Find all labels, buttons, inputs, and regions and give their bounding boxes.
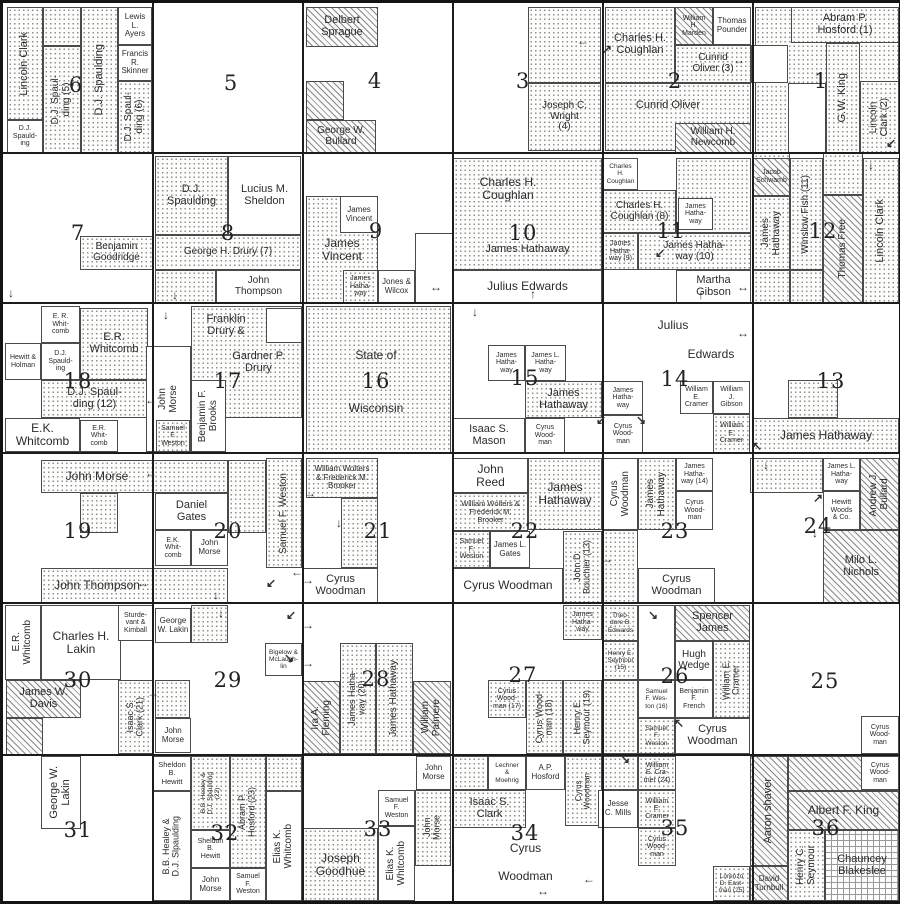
road-arrow-icon: → — [302, 573, 314, 587]
parcel-james-hatha-way: James Hatha- way — [563, 605, 602, 640]
parcel-lewis-l-ayers: Lewis L. Ayers — [118, 7, 152, 45]
parcel-owner-label: Samuel F. Weston — [161, 425, 185, 448]
parcel-jesse-c-mills: Jesse C. Mills — [598, 790, 638, 828]
parcel-area — [155, 680, 190, 718]
road-arrow-icon: ↓ — [472, 305, 478, 319]
road-arrow-icon: ↙ — [886, 136, 896, 150]
parcel-owner-label: Joseph Goodhue — [316, 852, 365, 878]
parcel-owner-label: E.R. Whit- comb — [90, 425, 107, 448]
parcel-owner-label: Sturde- vant & Kimball — [124, 612, 147, 635]
parcel-owner-label: Cyrus Wood- man — [870, 762, 891, 785]
road-arrow-icon: ↘ — [284, 651, 294, 665]
parcel-john-reed: John Reed — [453, 458, 528, 493]
parcel-owner-label: Charles H. Lakin — [53, 630, 110, 656]
parcel-william-palmere: William Palmere — [413, 681, 451, 754]
parcel-owner-label: Cyrus Woodman — [610, 471, 632, 516]
parcel-owner-label: Milo L. Nichols — [843, 555, 879, 579]
section-number-1: 1 — [814, 69, 828, 93]
parcel-owner-label: William H. Newcomb — [691, 127, 736, 149]
label-cunrid-oliver: Cunrid Oliver — [613, 95, 723, 117]
parcel-cyrus-woodman: Cyrus Woodman — [453, 568, 563, 603]
section-number-24: 24 — [804, 514, 833, 538]
parcel-aaron-shaver: Aaron shaver — [750, 756, 788, 866]
parcel-e-r-whit-comb: E.R. Whit- comb — [80, 420, 118, 452]
parcel-james-hatha-way-9: James Hatha- way (9) — [603, 233, 638, 270]
parcel-owner-label: Cunrid Oliver (3) — [692, 53, 733, 75]
parcel-e-k-whit-comb: E.K. Whit- comb — [155, 530, 191, 566]
parcel-owner-label: D.J. Spauld- ing — [13, 125, 37, 148]
parcel-owner-label: Samuel F. Weston — [645, 725, 667, 746]
section-number-17: 17 — [214, 369, 243, 393]
parcel-owner-label: James Hathaway — [646, 472, 668, 516]
parcel-owner-label: William Wolters & Frederick M. Brooker — [315, 465, 370, 491]
parcel-owner-label: Lechner & Moehrig — [495, 762, 519, 783]
parcel-owner-label: Julius Edwards — [487, 280, 568, 293]
parcel-cyrus-woodman: Cyrus Woodman — [565, 756, 602, 826]
parcel-owner-label: Lucius M. Sheldon — [241, 184, 288, 208]
parcel-owner-label: James L. Gates — [494, 541, 526, 558]
parcel-owner-label: William H. Marden — [682, 15, 706, 38]
parcel-owner-label: John Morse — [199, 876, 221, 893]
parcel-john-morse: John Morse — [415, 790, 451, 866]
parcel-d-j-spauld-ing: D.J. Spauld- ing — [7, 120, 43, 153]
plat-map: Lincoln ClarkD.J. Spaul- ding (5)D.J. Sp… — [0, 0, 900, 904]
parcel-area — [788, 83, 826, 153]
parcel-owner-label: Henry C. Seymour — [796, 845, 818, 885]
parcel-owner-label: James Hatha- way (14) — [681, 463, 708, 486]
parcel-sturde-vant-kimball: Sturde- vant & Kimball — [118, 605, 153, 641]
section-number-6: 6 — [69, 73, 83, 97]
road-arrow-icon: ← — [577, 34, 589, 48]
road-arrow-icon: ↙ — [596, 413, 606, 427]
parcel-thomas-pounder: Thomas Pounder — [713, 7, 751, 45]
parcel-charles-h-coughlan: Charles H. Coughlan — [605, 7, 675, 83]
parcel-owner-label: James Hathaway — [761, 211, 783, 255]
parcel-lechner-moehrig: Lechner & Moehrig — [488, 756, 526, 790]
parcel-benjamin-goodridge: Benjamin Goodridge — [80, 236, 153, 270]
road-arrow-icon: ↓ — [213, 588, 219, 602]
parcel-james-hathaway: James Hathaway — [753, 418, 899, 453]
parcel-george-w-lakin: George W. Lakin — [155, 608, 191, 643]
parcel-owner-label: James Hatha- way — [685, 203, 706, 226]
label-julius: Julius — [633, 316, 713, 334]
parcel-owner-label: Cyrus Woodman — [575, 773, 592, 809]
parcel-g-w-king: G.W. King — [826, 43, 860, 153]
parcel-owner-label: D.J. Spaulding — [94, 44, 106, 116]
parcel-john-morse: John Morse — [41, 460, 153, 493]
parcel-william-e-cra-mer-24: William E. Cra- mer (24) — [638, 756, 676, 790]
parcel-owner-label: Jacob Schwamb — [756, 169, 787, 184]
parcel-owner-label: Lewis L. Ayers — [125, 13, 145, 39]
section-number-29: 29 — [214, 668, 243, 692]
parcel-owner-label: James L. Hatha- way — [827, 463, 855, 486]
parcel-owner-label: Daniel Gates — [176, 500, 207, 524]
parcel-julius-edwards: Julius Edwards — [453, 270, 602, 303]
section-number-34: 34 — [511, 821, 540, 845]
section-number-33: 33 — [364, 817, 393, 841]
parcel-owner-label: John Morse — [158, 385, 180, 413]
parcel-ira-a-fleming: Ira A. Fleming — [303, 681, 340, 754]
parcel-william-wolters-frederick-m-brooker: William Wolters & Frederick M. Brooker — [306, 458, 378, 498]
parcel-owner-label: Henry E. Seymour (15) — [607, 650, 633, 671]
parcel-area — [153, 460, 228, 493]
parcel-owner-label: Charles H. Coughlan — [607, 163, 635, 184]
label-woodman: Woodman — [483, 867, 568, 885]
parcel-a-p-hosford: A.P. Hosford — [526, 756, 565, 790]
parcel-owner-label: Charles H. Coughlan — [614, 33, 666, 57]
road-arrow-icon: ↔ — [430, 280, 442, 294]
parcel-owner-label: George W. Lakin — [158, 617, 189, 634]
road-arrow-icon: ↔ — [733, 53, 745, 67]
parcel-isaac-s-mason: Isaac S. Mason — [453, 418, 525, 453]
parcel-owner-label: B.B. Healey & D.J. Spaulding (22) — [200, 772, 221, 814]
section-number-9: 9 — [369, 219, 383, 243]
parcel-john-thompson: John Thompson — [216, 270, 301, 303]
road-arrow-icon: ↔ — [537, 884, 549, 898]
section-number-3: 3 — [516, 69, 530, 93]
parcel-owner-label: Julius — [658, 319, 689, 332]
label-state-of: State of — [326, 346, 426, 364]
parcel-samuel-f-weston: Samuel F. Weston — [453, 531, 490, 568]
parcel-owner-label: Benjamin F. Brooks — [198, 390, 220, 442]
parcel-owner-label: John Morse — [422, 764, 444, 781]
section-number-11: 11 — [657, 219, 686, 243]
section-boundary-horizontal — [3, 452, 899, 454]
label-charles-h-coughlan: Charles H. Coughlan — [458, 166, 558, 212]
road-arrow-icon: ↓ — [868, 158, 874, 172]
parcel-cyrus-wood-man: Cyrus Wood- man — [861, 756, 899, 790]
section-number-18: 18 — [64, 369, 93, 393]
label-edwards: Edwards — [671, 345, 751, 363]
parcel-owner-label: Cyrus Wood- man — [613, 423, 634, 446]
road-arrow-icon: ↔ — [145, 466, 157, 480]
section-number-13: 13 — [817, 369, 846, 393]
parcel-lorenzo-d-east-man-25: Lorenzo D. East- man (25) — [713, 866, 750, 901]
parcel-owner-label: Samuel F. Weston — [279, 473, 290, 554]
parcel-owner-label: George W. Bullard — [317, 126, 365, 148]
road-arrow-icon: ↔ — [145, 393, 157, 407]
road-arrow-icon: ↙ — [286, 608, 296, 622]
section-number-7: 7 — [71, 221, 85, 245]
road-arrow-icon: ↔ — [737, 280, 749, 294]
parcel-owner-label: George W. Lakin — [49, 766, 73, 819]
parcel-area — [603, 530, 638, 603]
section-number-30: 30 — [64, 668, 93, 692]
section-number-25: 25 — [811, 669, 840, 693]
parcel-lincoln-clark: Lincoln Clark — [863, 158, 899, 303]
parcel-b-b-healey-d-j-slpaulding: B.B. Healey & D.J. Slpaulding — [153, 791, 191, 901]
parcel-area — [155, 270, 216, 303]
parcel-e-r-whit-comb: E. R. Whit- comb — [41, 306, 80, 343]
section-number-31: 31 — [64, 818, 93, 842]
parcel-john-d-bouchier-13: John D. Bouchier (13) — [563, 531, 602, 603]
parcel-samuel-f-weston: Samuel F. Weston — [266, 458, 302, 568]
parcel-owner-label: John Morse — [66, 470, 129, 483]
section-boundary-horizontal — [3, 602, 899, 604]
parcel-b-b-healey-d-j-spaulding-22: B.B. Healey & D.J. Spaulding (22) — [191, 756, 230, 830]
parcel-owner-label: Lorenzo D. East- man (25) — [718, 873, 744, 894]
road-arrow-icon: ↑ — [530, 287, 536, 301]
parcel-hewitt-holman: Hewitt & Holman — [5, 343, 41, 380]
parcel-owner-label: Samuel F. Weston — [460, 538, 484, 561]
parcel-owner-label: William E. Cramer — [722, 660, 741, 700]
section-number-27: 27 — [509, 663, 538, 687]
road-arrow-icon: ↖ — [674, 716, 684, 730]
parcel-area — [603, 680, 638, 754]
parcel-owner-label: Cyrus Wood- man — [535, 424, 556, 447]
parcel-area — [750, 458, 823, 493]
road-arrow-icon: ↓ — [763, 458, 769, 472]
parcel-owner-label: State of — [355, 349, 396, 362]
parcel-owner-label: James Hathaway — [485, 244, 569, 256]
road-arrow-icon: ↓ — [336, 516, 342, 530]
parcel-owner-label: James W. Davis — [19, 687, 67, 711]
parcel-owner-label: James Hathaway — [780, 429, 872, 442]
section-number-32: 32 — [211, 821, 240, 845]
section-number-19: 19 — [64, 519, 93, 543]
parcel-owner-label: Cyrus Wood- man (18) — [535, 691, 554, 743]
parcel-john-morse: John Morse — [155, 718, 191, 753]
parcel-area — [528, 7, 601, 83]
parcel-owner-label: Sheldon B. Hewitt — [158, 761, 186, 785]
parcel-area — [306, 81, 344, 120]
parcel-owner-label: James Vincent — [322, 237, 362, 263]
parcel-cyrus-wood-man-18: Cyrus Wood- man (18) — [526, 680, 563, 754]
parcel-francis-r-skinner: Francis R. Skinner — [118, 45, 152, 81]
parcel-george-w-bullard: George W. Bullard — [306, 120, 376, 153]
parcel-owner-label: John Thompson — [54, 579, 140, 592]
section-number-15: 15 — [511, 366, 540, 390]
section-number-8: 8 — [221, 221, 235, 245]
parcel-cyrus-wood-man: Cyrus Wood- man — [525, 418, 565, 453]
parcel-owner-label: D.J. Spaul- ding (6) — [124, 92, 146, 141]
parcel-owner-label: Spencer James — [692, 611, 733, 635]
parcel-owner-label: Cunrid Oliver — [636, 100, 700, 112]
parcel-owner-label: John Reed — [476, 463, 505, 489]
parcel-owner-label: Isaac S. Clark — [470, 797, 510, 821]
parcel-owner-label: James Hatha- way — [572, 611, 593, 634]
parcel-owner-label: Samuel F. Weston — [236, 873, 260, 896]
parcel-william-j-gibson: William J. Gibson — [713, 381, 750, 414]
parcel-area — [266, 308, 302, 343]
parcel-owner-label: John Thompson — [235, 276, 282, 298]
parcel-james-hatha-way-20: James Hatha- way (20) — [340, 643, 376, 754]
section-number-26: 26 — [661, 664, 690, 688]
parcel-owner-label: James Hathaway — [539, 388, 588, 412]
section-number-22: 22 — [511, 519, 540, 543]
parcel-owner-label: Benjamin Goodridge — [93, 242, 140, 264]
parcel-james-l-hatha-way: James L. Hatha- way — [823, 458, 860, 491]
parcel-andrew-j-bullard: Andrew J. Bullard — [860, 458, 899, 530]
parcel-owner-label: E.R. Whitcomb — [90, 332, 139, 356]
parcel-owner-label: James Hatha- way — [350, 275, 371, 298]
parcel-owner-label: Wisconsin — [349, 402, 404, 415]
road-arrow-icon: ↗ — [602, 42, 612, 56]
parcel-william-h-newcomb: William H. Newcomb — [675, 123, 751, 153]
parcel-abram-p-hosford-23: Abram P. Hosford (23) — [230, 756, 266, 868]
parcel-jones-wilcox: Jones & Wilcox — [378, 270, 415, 303]
parcel-area — [751, 45, 788, 83]
parcel-spencer-james: Spencer James — [675, 605, 750, 641]
parcel-owner-label: A.P. Hosford — [531, 764, 559, 781]
parcel-owner-label: Isaac S. Clark (21) — [126, 697, 145, 737]
parcel-owner-label: David Turnbull — [755, 875, 784, 892]
parcel-theo-dore-b-edwards: Theo- dore B. Edwards — [603, 605, 638, 641]
road-arrow-icon: ↓ — [172, 288, 178, 302]
parcel-owner-label: Isaac S. Mason — [469, 424, 509, 448]
section-number-35: 35 — [661, 816, 690, 840]
parcel-owner-label: Andrew J. Bullard — [869, 472, 891, 516]
parcel-d-j-spaul-ding-5: D.J. Spaul- ding (5) — [43, 46, 81, 153]
parcel-owner-label: Delbert Sprague — [321, 15, 363, 39]
road-arrow-icon: ↖ — [752, 439, 762, 453]
road-arrow-icon: ↘ — [620, 752, 630, 766]
parcel-william-h-marden: William H. Marden — [675, 7, 713, 45]
road-arrow-icon: → — [302, 656, 314, 670]
parcel-chauncey-blakeslee: Chauncey Blakeslee — [825, 830, 899, 901]
parcel-d-j-spaulding: D.J. Spaulding — [81, 7, 118, 153]
parcel-samuel-f-weston: Samuel F. Weston — [230, 868, 266, 901]
parcel-owner-label: James Hatha- way (9) — [609, 240, 632, 263]
parcel-owner-label: Joseph C. Wright (4) — [542, 101, 587, 133]
road-arrow-icon: ↔ — [737, 326, 749, 340]
road-arrow-icon: → — [147, 686, 159, 700]
parcel-owner-label: Hewitt & Holman — [10, 354, 36, 369]
parcel-owner-label: Samuel F. Wes- ton (16) — [645, 688, 667, 709]
parcel-james-hathaway: James Hathaway — [376, 643, 413, 754]
parcel-owner-label: Ira A. Fleming — [311, 700, 333, 736]
parcel-owner-label: Cyrus Woodman — [463, 579, 552, 592]
parcel-owner-label: James Hathaway — [538, 481, 591, 507]
parcel-owner-label: Abram P. Hosford (23) — [238, 787, 257, 837]
parcel-owner-label: James Hathaway — [389, 660, 400, 737]
parcel-owner-label: Jones & Wilcox — [382, 278, 411, 295]
road-arrow-icon: ↓ — [218, 606, 224, 620]
parcel-owner-label: John D. Bouchier (13) — [573, 540, 592, 594]
parcel-owner-label: James Hatha- way (10) — [663, 241, 725, 263]
parcel-owner-label: Cyrus Woodman — [652, 574, 702, 598]
section-boundary-horizontal — [3, 152, 899, 154]
section-number-36: 36 — [812, 816, 841, 840]
section-number-10: 10 — [509, 221, 538, 245]
parcel-cyrus-wood-man: Cyrus Wood- man — [861, 716, 899, 754]
parcel-owner-label: William E. Cra- mer (24) — [644, 762, 670, 785]
road-arrow-icon: ↓ — [163, 308, 169, 322]
parcel-henry-e-seymour-15: Henry E. Seymour (15) — [603, 641, 638, 680]
section-number-5: 5 — [224, 71, 238, 95]
parcel-area — [823, 153, 863, 195]
road-arrow-icon: ↙ — [655, 246, 665, 260]
parcel-owner-label: Benjamin F. French — [679, 688, 708, 711]
parcel-albert-f-king: Albert F. King — [788, 791, 899, 830]
parcel-william-e-cramer: William E. Cramer — [713, 414, 750, 453]
section-number-14: 14 — [661, 367, 690, 391]
section-number-12: 12 — [809, 219, 838, 243]
parcel-owner-label: Lincoln Clark (2) — [869, 98, 891, 136]
section-number-28: 28 — [362, 667, 391, 691]
parcel-abram-p-hosford-1: Abram P. Hosford (1) — [791, 7, 899, 43]
label-wisconsin: Wisconsin — [326, 399, 426, 417]
parcel-owner-label: B.B. Healey & D.J. Slpaulding — [162, 816, 181, 877]
section-number-4: 4 — [368, 69, 382, 93]
parcel-lucius-m-sheldon: Lucius M. Sheldon — [228, 156, 301, 235]
parcel-owner-label: George H. Drury (7) — [184, 247, 272, 258]
parcel-area — [6, 718, 43, 755]
parcel-joseph-c-wright-4: Joseph C. Wright (4) — [528, 83, 601, 151]
parcel-owner-label: Lincoln Clark — [875, 199, 887, 263]
parcel-owner-label: William Palmere — [421, 699, 443, 736]
section-number-16: 16 — [362, 369, 391, 393]
parcel-john-morse: John Morse — [191, 868, 230, 901]
parcel-owner-label: Samuel F. Weston — [385, 797, 409, 820]
parcel-owner-label: William J. Gibson — [720, 386, 743, 409]
parcel-owner-label: Francis R. Skinner — [121, 50, 148, 76]
parcel-john-morse: John Morse — [416, 756, 451, 790]
parcel-elias-k-whitcomb: Elias K. Whitcomb — [266, 791, 302, 901]
parcel-owner-label: Charles H. Coughlan — [480, 176, 537, 202]
parcel-owner-label: Cyrus Woodman — [688, 724, 738, 748]
parcel-james-hatha-way: James Hatha- way — [343, 270, 378, 303]
parcel-lincoln-clark: Lincoln Clark — [7, 7, 43, 120]
parcel-owner-label: Jesse C. Mills — [605, 800, 631, 817]
parcel-william-e-cramer: William E. Cramer — [713, 641, 750, 718]
road-arrow-icon: ↘ — [648, 608, 658, 622]
road-arrow-icon: → — [601, 552, 613, 566]
parcel-james-hatha-way: James Hatha- way — [603, 381, 643, 415]
parcel-delbert-sprague: Delbert Sprague — [306, 7, 378, 47]
parcel-area — [453, 756, 488, 790]
parcel-james-hathaway: James Hathaway — [753, 196, 790, 270]
parcel-cyrus-woodman: Cyrus Woodman — [303, 568, 378, 603]
parcel-area — [43, 7, 81, 46]
parcel-owner-label: Abram P. Hosford (1) — [817, 13, 872, 37]
road-arrow-icon: ↙ — [266, 576, 276, 590]
parcel-cyrus-woodman: Cyrus Woodman — [675, 718, 750, 754]
parcel-henry-c-seymour: Henry C. Seymour — [788, 830, 825, 901]
parcel-owner-label: James Hatha- way — [612, 387, 633, 410]
parcel-owner-label: Cyrus Wood- man — [870, 724, 891, 747]
road-arrow-icon: ↓ — [812, 526, 818, 540]
parcel-d-j-spaulding: D.J. Spaulding — [155, 156, 228, 235]
parcel-owner-label: Hewitt Woods & Co. — [831, 499, 853, 522]
parcel-e-r-whitcomb: E.R. Whitcomb — [5, 605, 41, 680]
parcel-samuel-f-weston: Samuel F. Weston — [638, 718, 675, 754]
parcel-area — [790, 270, 823, 303]
road-arrow-icon: ↓ — [8, 286, 14, 300]
section-boundary-horizontal — [3, 754, 899, 756]
parcel-owner-label: E.K. Whit- comb — [164, 537, 181, 560]
parcel-owner-label: E.R. Whitcomb — [12, 620, 34, 664]
parcel-owner-label: John Morse — [162, 727, 184, 744]
parcel-owner-label: Woodman — [498, 870, 552, 883]
parcel-thomas-free: Thomas Free — [823, 195, 863, 303]
parcel-area — [753, 270, 790, 303]
parcel-owner-label: Henry E. Seymour (19) — [573, 690, 592, 745]
parcel-owner-label: William E. Cramer — [720, 422, 743, 445]
parcel-henry-e-seymour-19: Henry E. Seymour (19) — [563, 680, 602, 754]
parcel-area — [266, 756, 302, 791]
label-franklin-drury: Franklin Drury & — [191, 311, 261, 341]
parcel-d-j-spaul-ding-6: D.J. Spaul- ding (6) — [118, 81, 152, 153]
parcel-d-j-spaul-ding-12: D.J. Spaul- ding (12) — [41, 380, 148, 418]
section-number-2: 2 — [668, 69, 682, 93]
parcel-owner-label: Cyrus Woodman — [316, 574, 366, 598]
parcel-winslow-fish-11: Winslow Fish (11) — [790, 158, 823, 270]
parcel-owner-label: Franklin Drury & — [206, 314, 245, 338]
parcel-owner-label: Elias K. Whitcomb — [386, 841, 408, 885]
road-arrow-icon: ↘ — [636, 413, 646, 427]
parcel-cyrus-woodman: Cyrus Woodman — [638, 568, 715, 603]
